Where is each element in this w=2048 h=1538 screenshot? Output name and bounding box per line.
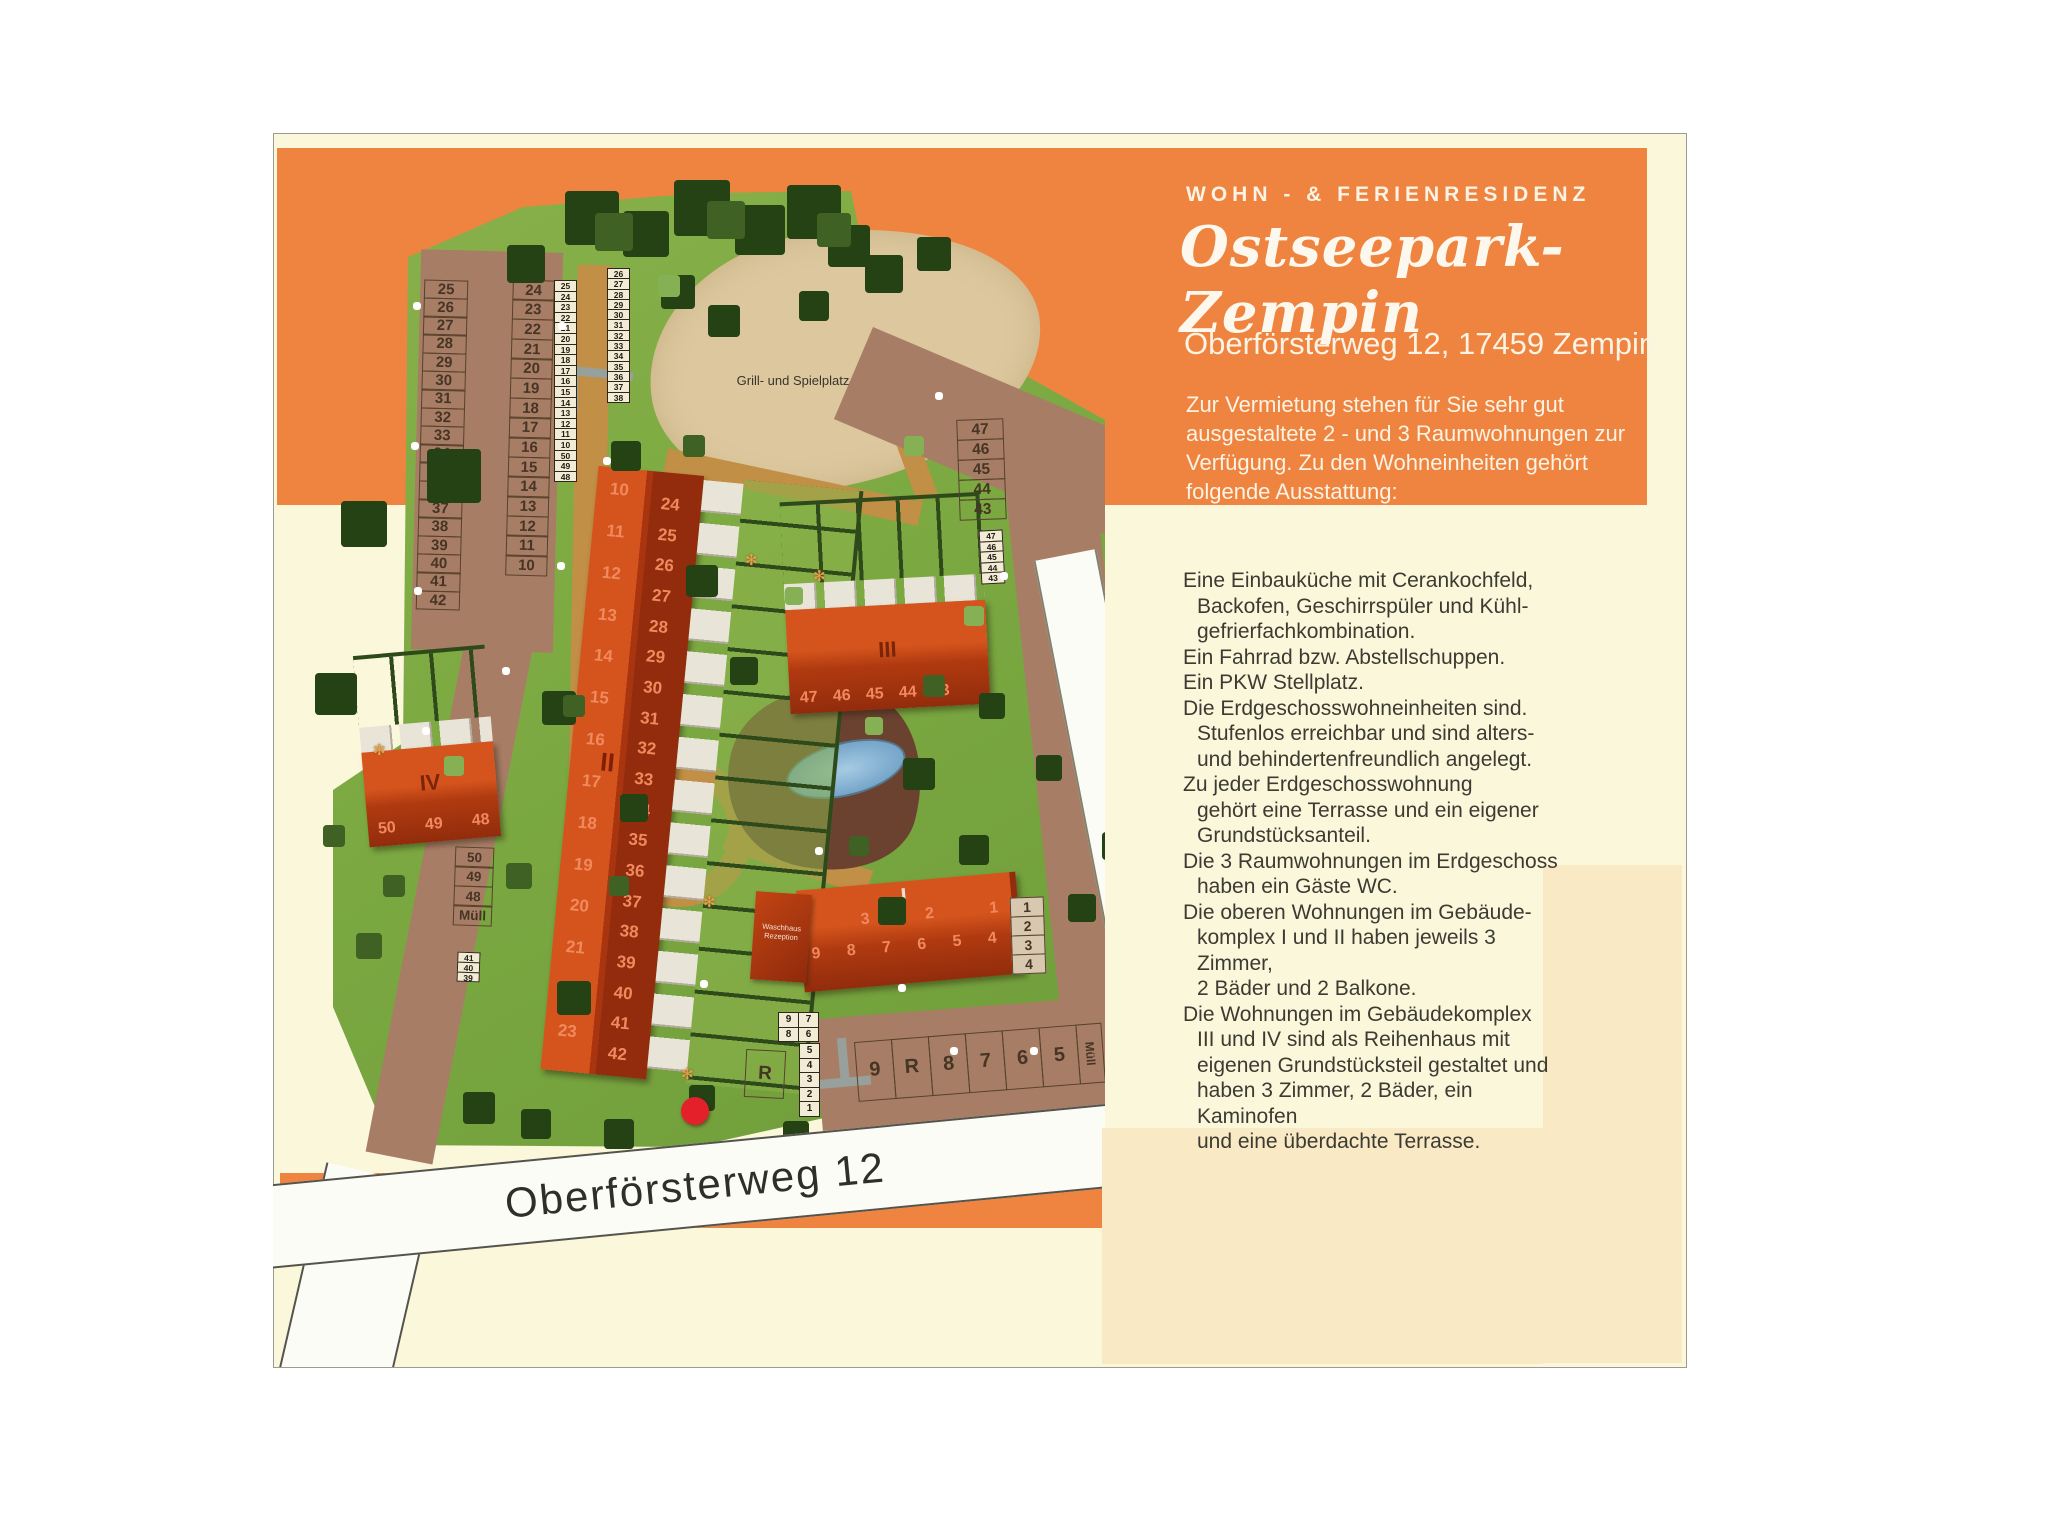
feature-item: Eine Einbauküche mit Cerankochfeld, Back… [1183,568,1563,645]
parking-stall: Müll [453,904,493,926]
parking-stall: 43 [959,498,1007,521]
header-kicker: WOHN - & FERIENRESIDENZ [1186,183,1656,207]
mini-stall-row: 97 [779,1013,821,1028]
parking-stall: 5 [1038,1025,1081,1088]
parking-nw-right-column: 242322212019181716151413121110 [505,281,555,577]
feature-item: Die 3 Raumwohnungen im Erdgeschoss haben… [1183,849,1563,900]
feature-item: Zu jeder Erdgeschosswohnung gehört eine … [1183,772,1563,849]
header-address: Oberförsterweg 12, 17459 Zempin [1184,326,1664,362]
intro-text: Zur Vermietung stehen für Sie sehr gut a… [1186,390,1672,506]
unit-number: 26 [654,555,675,577]
unit-number: 29 [645,647,666,669]
unit-number: 44 [898,683,917,702]
building-i-lower-units: 987654 [811,929,998,963]
feature-item: Ein PKW Stellplatz. [1183,670,1563,696]
mini-stall: 7 [798,1012,819,1028]
mini-stall: 3 [799,1072,820,1088]
unit-number: 40 [613,982,634,1004]
parking-sw-column: 504948Müll [453,847,495,926]
unit-number: 46 [832,687,851,706]
unit-number: 11 [606,521,626,543]
building-iv-gardens [353,645,491,728]
flower-icon: ✻ [813,567,826,585]
peach-block-right [1543,865,1682,1363]
unit-number: 12 [601,562,622,584]
unit-number: 37 [622,891,643,913]
mini-stall-row: 86 [779,1028,821,1043]
unit-number: 28 [648,616,669,638]
building-i: I 321 987654 [796,872,1024,993]
unit-number: 14 [593,646,614,668]
parking-stall: 4 [1012,953,1047,975]
feature-list: Eine Einbauküche mit Cerankochfeld, Back… [1183,568,1563,1155]
feature-item: Die Erdgeschosswohneinheiten sind. Stufe… [1183,696,1563,773]
unit-number: 10 [609,479,630,501]
peach-block-bottom [1102,1128,1543,1364]
unit-number: 36 [625,860,646,882]
waschhaus-rezeption: Waschhaus Rezeption [750,891,812,983]
unit-number: 47 [799,689,818,708]
unit-number: 13 [597,604,618,626]
mini-stall: 5 [799,1043,820,1059]
mini-stall-pairs: 9786 [779,1013,821,1042]
flower-icon: ✻ [703,893,716,911]
unit-number: 1 [989,899,999,918]
unit-number: 32 [636,738,657,760]
unit-number: 42 [607,1043,628,1065]
mini-stall: 1 [799,1101,820,1117]
unit-number: 45 [865,685,884,704]
shed-column-sw: 414039 [456,953,480,983]
unit-number: 35 [628,830,649,852]
flyer-canvas: 1011121314151617181920212223 24252627282… [0,0,2048,1538]
unit-number: 30 [642,677,663,699]
location-marker [681,1097,709,1125]
parking-stall: 42 [416,590,461,611]
mini-stall: 4 [799,1058,820,1074]
shed-box: 39 [456,971,479,983]
mini-stall: 6 [798,1027,819,1043]
building-iii-gardens [780,492,984,584]
unit-number: 24 [660,494,681,516]
unit-number: 7 [881,939,891,958]
parking-stall: 10 [505,555,548,577]
mini-stall: 2 [799,1087,820,1103]
shed-column-b: 26272829303132333435363738 [607,269,630,403]
unit-number: 38 [619,921,640,943]
unit-number: 4 [987,929,997,948]
shed-box: 38 [607,392,630,403]
unit-number: 15 [589,687,610,709]
unit-number: 18 [577,812,598,834]
unit-number: 39 [616,952,637,974]
unit-number: 34 [630,799,651,821]
unit-number: 33 [633,769,654,791]
feature-item: Die Wohnungen im Gebäudekomplex III und … [1183,1002,1563,1155]
unit-number: 21 [565,937,586,959]
parking-ne-column: 4746454443 [956,419,1006,521]
unit-number: 5 [952,933,962,952]
unit-number: 22 [561,979,582,1001]
shed-box: 43 [981,571,1006,584]
building-ii-label: II [599,746,616,778]
parking-stall-r: R [744,1049,786,1099]
feature-item: Die oberen Wohnungen im Gebäude- komplex… [1183,900,1563,1002]
unit-number: 23 [557,1021,578,1043]
unit-number: 19 [573,854,594,876]
unit-number: 3 [860,911,870,930]
parking-nw-left-column: 252627282930313233343536373839404142 [416,280,469,610]
survey-dots [273,145,275,147]
playground-label: Grill- und Spielplatz [713,373,873,388]
muell-stall: Müll [1075,1023,1105,1085]
feature-item: Ein Fahrrad bzw. Abstellschuppen. [1183,645,1563,671]
unit-number: 9 [811,945,821,964]
unit-number: 25 [657,525,678,547]
mini-stall: 9 [778,1012,799,1028]
unit-number: 41 [610,1013,631,1035]
unit-number: 2 [924,905,934,924]
flower-icon: ✻ [373,741,386,759]
site-map: 1011121314151617181920212223 24252627282… [273,145,1105,1367]
shed-column-ne: 4746454443 [979,530,1006,584]
flower-icon: ✻ [745,551,758,569]
parking-east-column: 1234 [1010,897,1047,974]
unit-number: 49 [424,815,443,834]
shed-column-a: 25242322212019181716151413121110504948 [554,281,577,482]
building-iii-group: III 4746454443 [780,492,991,714]
unit-number: 27 [651,586,672,608]
parking-stall: 8 [927,1033,970,1096]
unit-number: 6 [917,936,927,955]
flower-icon: ✻ [681,1065,694,1083]
unit-number: 43 [931,682,950,701]
unit-number: 20 [569,896,590,918]
mini-stall: 8 [778,1027,799,1043]
unit-number: 50 [377,819,396,838]
shed-box: 48 [554,471,577,483]
unit-number: 48 [471,811,490,830]
unit-number: 31 [639,708,660,730]
mini-stall-tail: 54321 [800,1044,821,1117]
unit-number: 8 [846,942,856,961]
